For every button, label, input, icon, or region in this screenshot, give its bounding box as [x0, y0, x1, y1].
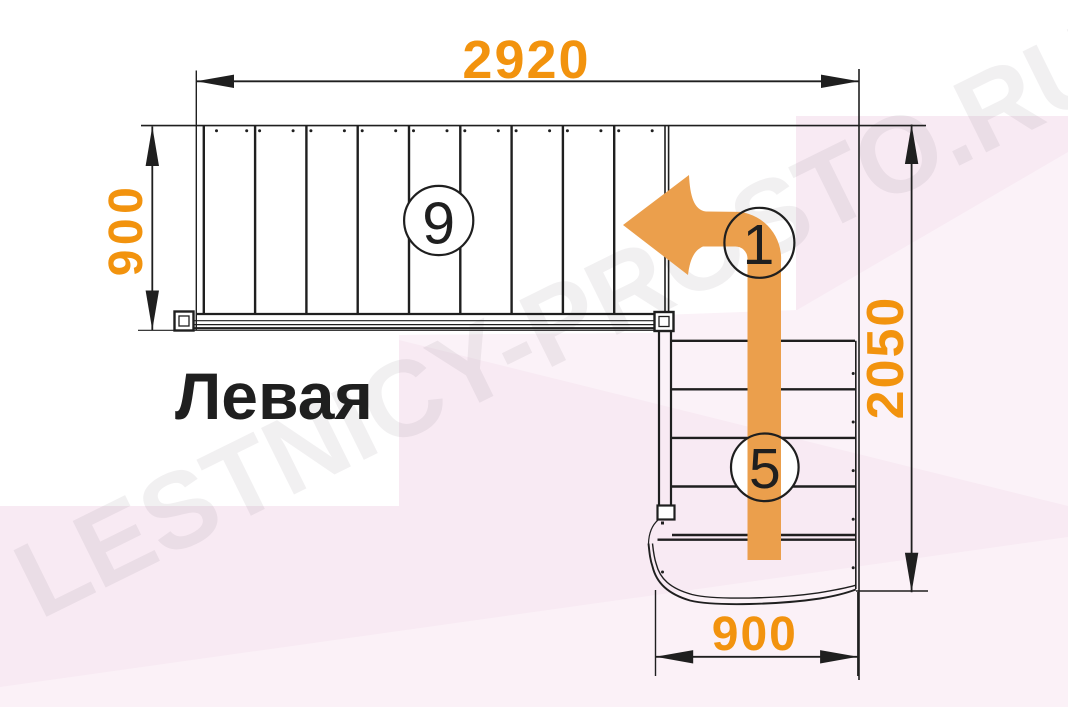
svg-text:1: 1 — [743, 213, 775, 277]
svg-text:900: 900 — [712, 608, 798, 661]
svg-text:900: 900 — [100, 183, 153, 277]
svg-text:9: 9 — [422, 191, 455, 257]
svg-text:5: 5 — [749, 437, 781, 501]
svg-text:2920: 2920 — [462, 30, 590, 90]
svg-text:Левая: Левая — [175, 359, 373, 433]
svg-text:2050: 2050 — [857, 296, 915, 420]
